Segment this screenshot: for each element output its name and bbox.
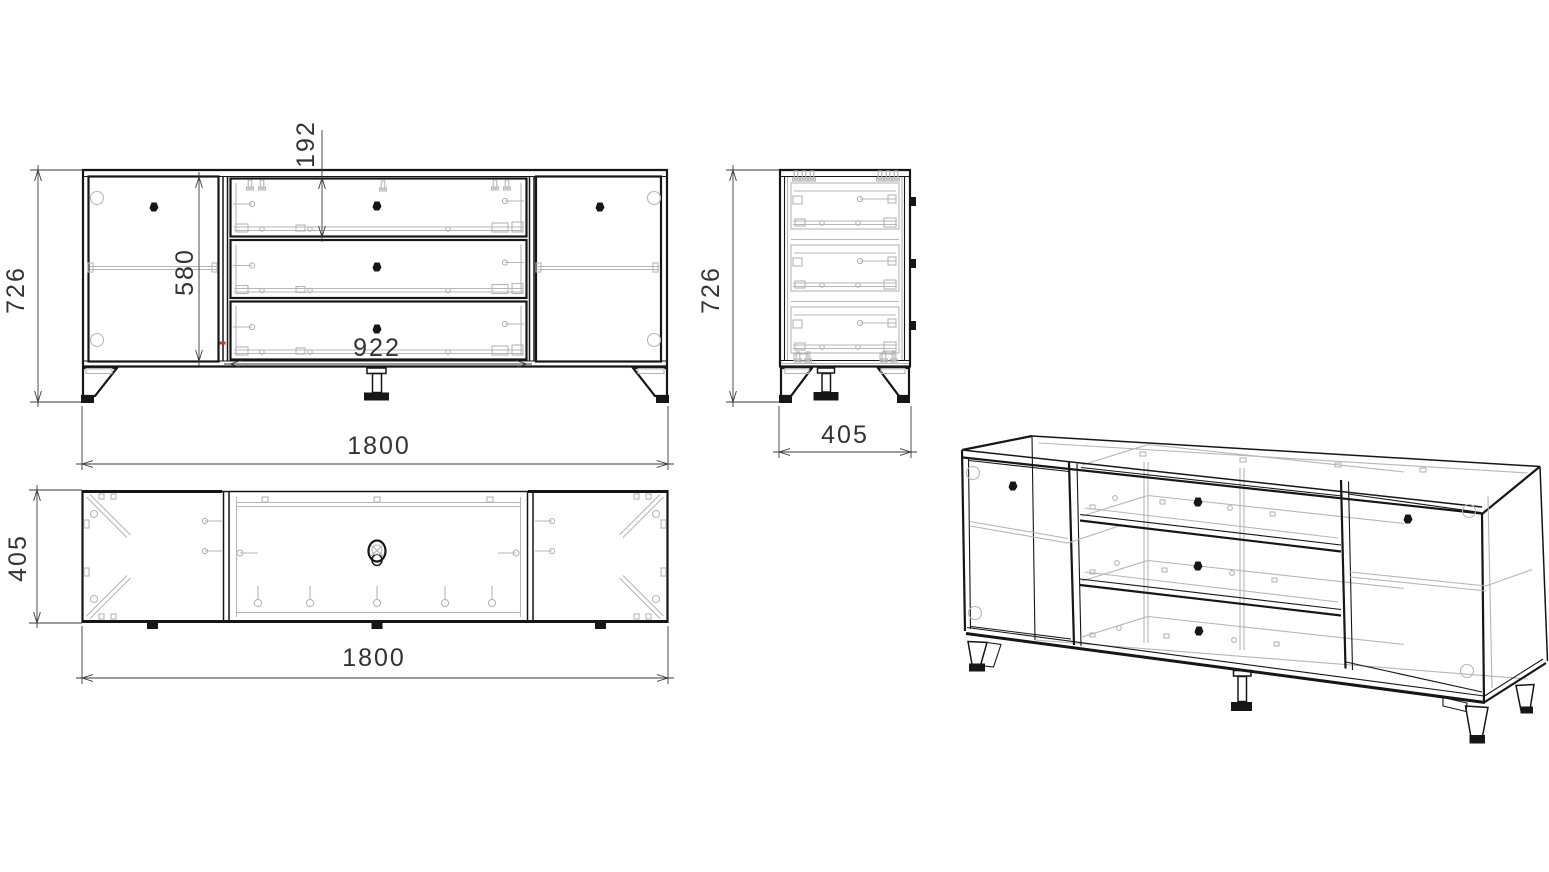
dim-top-width: 1800 [76, 626, 674, 684]
top-fitting [374, 497, 380, 502]
isometric-view [962, 436, 1548, 744]
screw-head [254, 599, 261, 606]
shelf-line [538, 267, 659, 270]
door-top-edge [1348, 494, 1481, 513]
front-left-leg [968, 642, 987, 666]
cable-grommet [369, 541, 386, 566]
back-top-edge [1032, 436, 1540, 467]
front-legs [81, 368, 669, 403]
back-leg [781, 368, 812, 396]
side-view: 726 405 [697, 165, 917, 458]
front-view: 726 580 192 922 1800 [2, 120, 674, 470]
front-left-inner [969, 459, 971, 629]
leg-bracket [638, 369, 664, 374]
extension-line [726, 170, 780, 402]
dim-front-width: 1800 [76, 406, 674, 470]
door-knob [1404, 515, 1413, 524]
front-foot-pad [897, 395, 910, 403]
front-right-edge [1482, 514, 1484, 703]
dim-label-front-width: 1800 [347, 432, 411, 460]
top-view: 405 1800 [4, 485, 674, 684]
drawer-box-side [791, 183, 899, 229]
front-dimensions: 726 580 192 922 1800 [2, 120, 674, 470]
top-fitting [262, 497, 268, 502]
dim-label-side-height: 726 [697, 266, 725, 314]
corner-brace [620, 494, 664, 538]
center-foot-flange [818, 368, 835, 373]
dowel-pin [247, 180, 254, 190]
screw-head [488, 599, 495, 606]
foot-pad [969, 664, 985, 672]
shelf-support [212, 263, 217, 272]
drawer-knob-side [910, 259, 917, 268]
foot-pad [1470, 735, 1486, 744]
dim-drawer-bay-width: 922 [224, 334, 532, 367]
fitting [1160, 500, 1165, 504]
left-foot-pad [81, 395, 94, 403]
leg-bracket [785, 369, 809, 374]
drawer-knob [373, 263, 382, 272]
right-divider [528, 492, 534, 621]
drawer-box-side [791, 307, 899, 353]
top-fitting [1140, 452, 1146, 456]
divider-edge [1341, 480, 1346, 669]
top-right-edge [1482, 467, 1540, 515]
fitting [1270, 512, 1275, 516]
drawer-box-outline [236, 497, 521, 617]
drawer-knob [1194, 498, 1203, 507]
drawer-knob [373, 202, 382, 211]
foot-pad [1521, 707, 1534, 714]
left-divider [223, 177, 228, 362]
top-foot-marks [147, 623, 606, 629]
separator-thin [1080, 579, 1341, 610]
foot-mark [372, 623, 383, 629]
side-legs [779, 368, 910, 403]
dowel-pin [380, 181, 387, 191]
drawer-knob-side [910, 321, 917, 330]
drawer-knob-side [910, 197, 917, 206]
slide-rail [1085, 508, 1338, 602]
door-right-edge [1069, 463, 1074, 646]
iso-carcass [962, 436, 1548, 703]
divider-pin [205, 521, 222, 551]
drawer-box-top [1082, 561, 1404, 589]
separator-thin [1080, 515, 1341, 546]
iso-drawers [1080, 468, 1342, 636]
fitting [1272, 578, 1277, 582]
corner-brace [87, 494, 131, 538]
technical-drawing-canvas: 726 580 192 922 1800 [0, 0, 1549, 872]
glass-shelf [1350, 570, 1532, 592]
dim-side-depth: 405 [773, 406, 917, 458]
dim-label-top-width: 1800 [342, 644, 406, 672]
dim-label-drawer-bay-width: 922 [353, 334, 401, 362]
dim-front-height: 726 [2, 165, 82, 407]
edge-fitting [84, 520, 89, 528]
top-face-inner-line [1039, 443, 1528, 473]
iso-right-door [1341, 480, 1532, 692]
glass-shelf [970, 522, 1122, 544]
bottom-rail-top [967, 628, 1484, 697]
center-foot-stem [822, 374, 831, 393]
center-foot-stem [1238, 677, 1247, 702]
separator [1080, 585, 1341, 616]
foot-mark [147, 623, 158, 629]
dim-label-side-depth: 405 [821, 421, 869, 449]
hinge-circle [648, 334, 661, 347]
drawer-box-side [791, 245, 899, 291]
leg-bracket [86, 369, 112, 374]
foot-mark [595, 623, 606, 629]
back-foot-pad [779, 395, 792, 403]
dim-label-door-height: 580 [171, 248, 199, 296]
drawer-knob [1195, 627, 1204, 636]
back-left-edge [1032, 436, 1035, 640]
furniture-drawing-svg: 726 580 192 922 1800 [0, 0, 1549, 872]
dowel-pin [259, 180, 266, 190]
hinge-circle [648, 192, 661, 205]
center-foot-flange [367, 368, 386, 374]
separator [1080, 521, 1341, 552]
dim-drawer-height: 192 [292, 120, 325, 242]
right-divider [530, 177, 535, 362]
door-knob [150, 203, 159, 212]
hinge-circle [91, 192, 104, 205]
screw [1113, 496, 1118, 501]
fitting [1164, 634, 1169, 638]
top-fitting [487, 497, 493, 502]
drawer-box-bottom [1082, 617, 1404, 645]
screw-head [306, 599, 313, 606]
top-carcass [82, 490, 668, 623]
corner-brace [87, 576, 131, 620]
hinge-circle [1461, 665, 1474, 678]
door-knob [596, 203, 605, 212]
dim-door-height: 580 [171, 172, 202, 366]
fitting [1274, 642, 1279, 646]
door-knob [1009, 482, 1018, 491]
screw [1230, 571, 1235, 576]
side-hardware [791, 171, 916, 362]
screw-shaft [258, 586, 492, 600]
drawer-knob [1194, 562, 1203, 571]
front-leg [878, 368, 909, 396]
door-left-edge [1349, 482, 1353, 671]
front-drawers [231, 179, 527, 360]
right-foot-pad [656, 395, 669, 403]
bottom-rail [966, 634, 1485, 703]
center-foot-pad [1231, 702, 1252, 711]
dim-label-front-height: 726 [2, 266, 30, 314]
divider-edge [1077, 464, 1081, 647]
right-back-edge [1540, 467, 1548, 662]
center-foot-pad [814, 392, 839, 401]
hinge-circle [91, 334, 104, 347]
dim-side-height: 726 [697, 165, 780, 407]
dowel-pin [492, 180, 499, 190]
edge-fitting [661, 568, 666, 576]
screw [1232, 638, 1237, 643]
top-fitting [1240, 458, 1246, 462]
right-bottom-edge [1484, 663, 1546, 703]
side-dimensions: 726 405 [697, 165, 917, 458]
left-divider [224, 492, 230, 621]
screw [1115, 561, 1120, 566]
leg-bracket [881, 369, 905, 374]
screw-head [373, 599, 380, 606]
edge-fitting [84, 568, 89, 576]
center-foot-stem [373, 374, 382, 393]
screw-head [441, 599, 448, 606]
screw [1228, 506, 1233, 511]
dim-top-depth: 405 [4, 485, 82, 628]
side-panel-inner [1488, 496, 1492, 688]
dowel-pin [504, 180, 511, 190]
drawer-top-edge [1081, 468, 1342, 497]
edge-fitting [661, 520, 666, 528]
drawer-knob [373, 325, 382, 334]
screw [1117, 626, 1122, 631]
corner-brace [620, 576, 664, 620]
front-left-edge [962, 450, 965, 631]
top-left-edge [962, 436, 1032, 450]
fitting [1162, 568, 1167, 572]
dim-label-drawer-height: 192 [292, 120, 320, 168]
drawer-gap-line [791, 240, 899, 302]
front-right-door [536, 177, 661, 362]
front-right-leg [1466, 706, 1489, 739]
divider-pin [535, 521, 552, 551]
iso-left-door [967, 461, 1123, 647]
shelf-support [653, 263, 658, 272]
center-foot-pad [364, 393, 389, 401]
door-top-edge [969, 461, 1069, 472]
side-carcass [779, 170, 911, 367]
top-fitting [1420, 468, 1426, 472]
top-hardware [84, 497, 666, 617]
dim-label-top-depth: 405 [4, 534, 32, 582]
